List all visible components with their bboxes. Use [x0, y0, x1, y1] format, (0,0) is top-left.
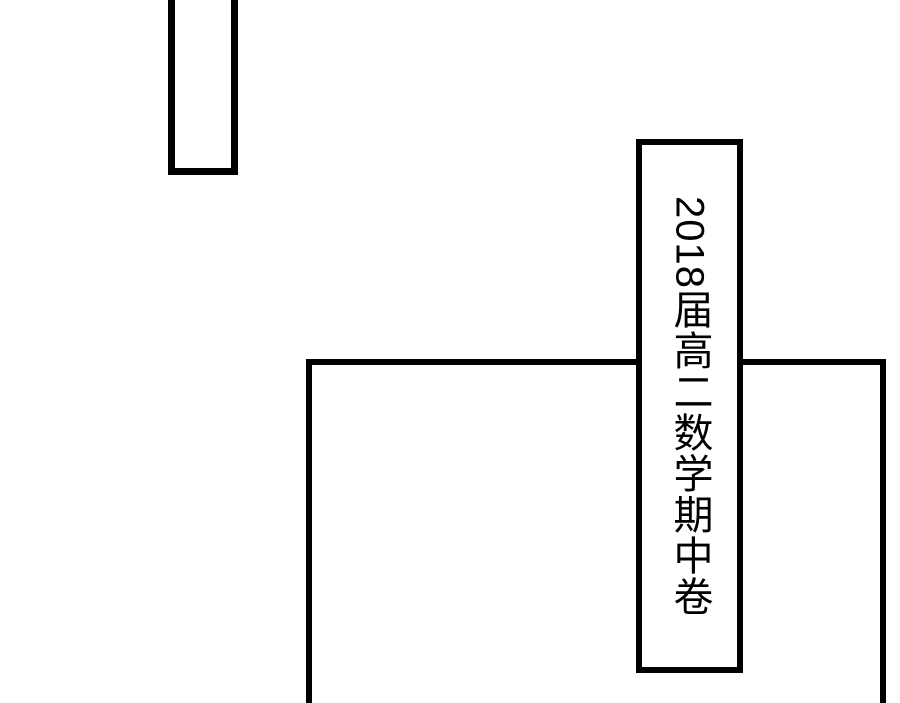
comic-page: 2018届高二数学期中卷: [0, 0, 900, 703]
panel-top-left: [168, 0, 238, 175]
panel-main: [306, 359, 886, 703]
title-banner: 2018届高二数学期中卷: [636, 139, 743, 673]
title-banner-text: 2018届高二数学期中卷: [670, 196, 710, 617]
